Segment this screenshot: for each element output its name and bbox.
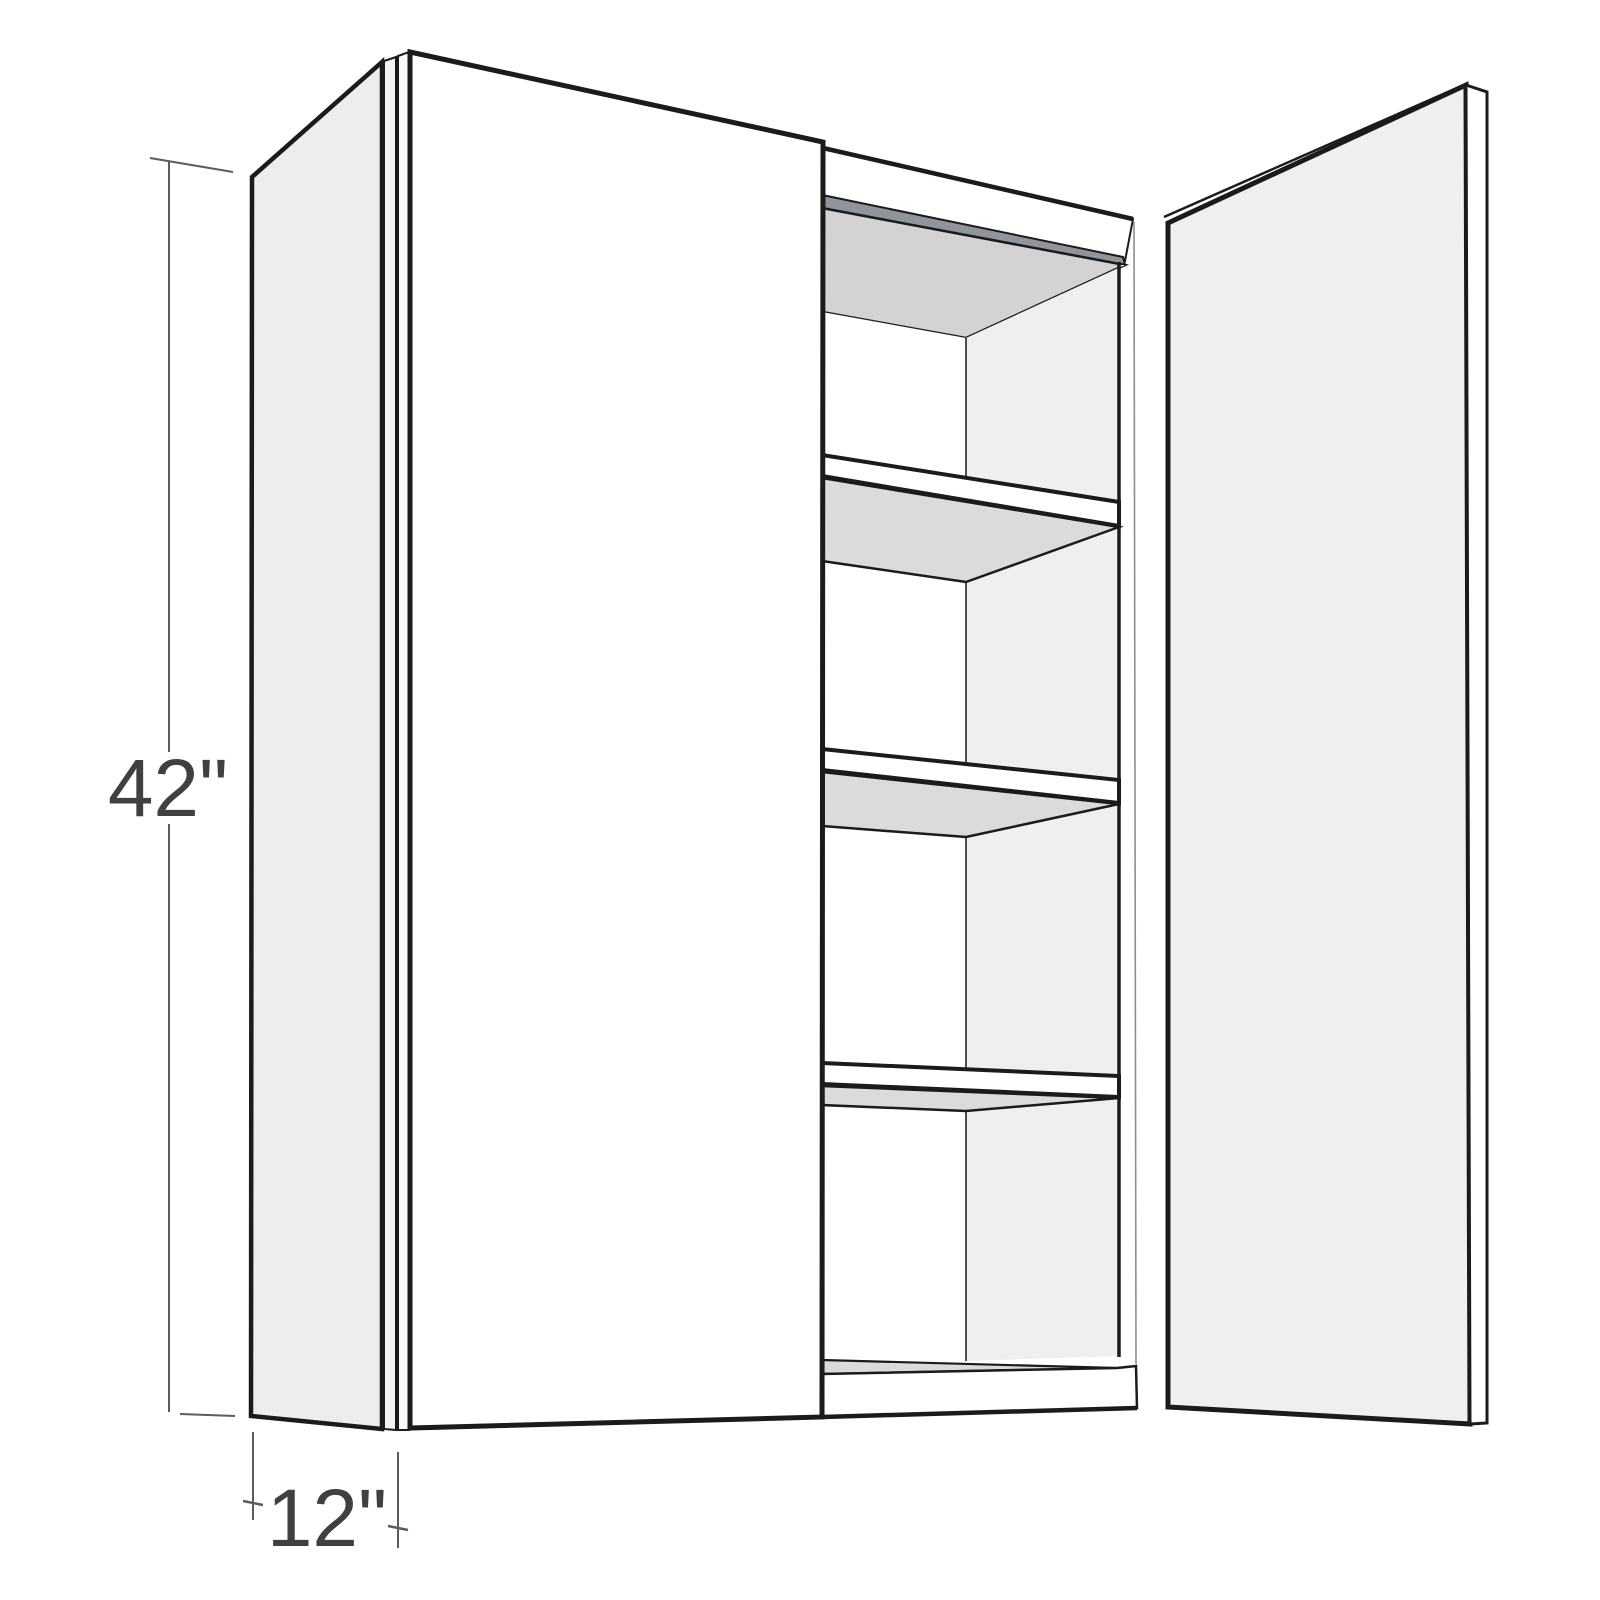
cabinet-interior	[822, 148, 1168, 1417]
right-door-edge-face	[1466, 85, 1487, 1424]
cabinet-diagram-canvas: 42" 12"	[0, 0, 1600, 1600]
left-side-panel	[251, 62, 382, 1429]
height-dimension-label: 42"	[108, 743, 228, 834]
right-frame-stile	[1119, 218, 1168, 1408]
right-door-inner-face	[1168, 85, 1470, 1424]
hinge-edge-strip	[384, 57, 396, 1430]
left-side-outer-face	[251, 62, 382, 1429]
door-edge-strip	[398, 52, 409, 1430]
right-door-open	[1164, 84, 1487, 1424]
depth-dimension-label: 12"	[267, 1473, 387, 1564]
left-door	[410, 52, 823, 1428]
left-door-hinge-edges	[384, 52, 409, 1430]
cabinet-diagram: 42" 12"	[0, 0, 1600, 1600]
